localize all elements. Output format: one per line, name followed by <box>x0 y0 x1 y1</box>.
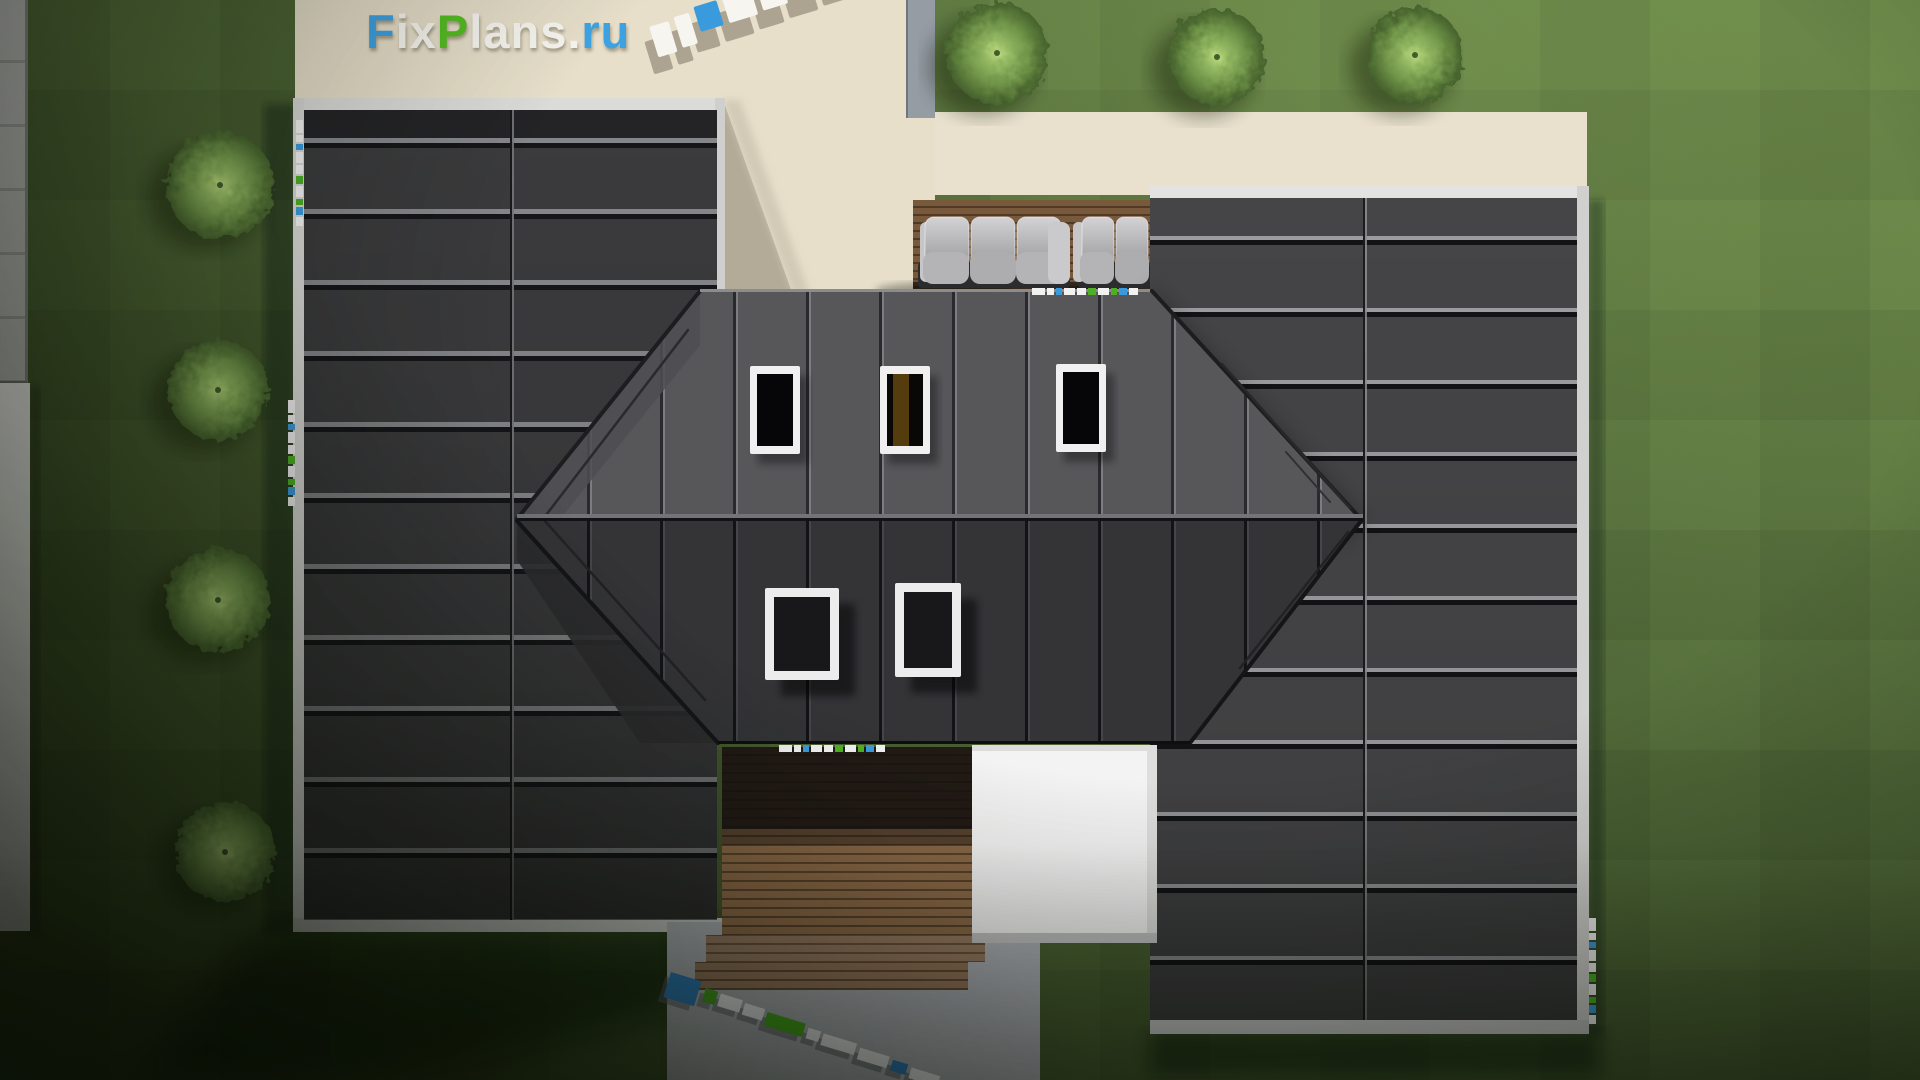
skylights-upper-row <box>750 364 1114 464</box>
logo-part: F <box>366 5 396 58</box>
logo-part: lans <box>469 5 567 58</box>
watermark-strip <box>1589 918 1596 1024</box>
logo-part: ix <box>396 5 437 58</box>
aerial-house-render: FixPlans.ru <box>0 0 1920 1080</box>
deck-shadow <box>722 747 975 829</box>
logo-part: P <box>437 5 469 58</box>
roof-ridge <box>517 514 1363 518</box>
logo-part: ru <box>581 5 630 58</box>
white-wall-strip <box>0 383 30 931</box>
sofa-three-seat <box>918 217 1070 288</box>
deck-step-2 <box>695 962 968 990</box>
logo-part: . <box>567 5 581 58</box>
watermark-strip <box>288 400 295 506</box>
patio-north-band <box>935 112 1587 195</box>
sofa-two-seat <box>1073 217 1150 288</box>
deck-step-1 <box>706 935 985 962</box>
bottom-eave <box>718 741 1190 744</box>
south-yard <box>667 745 1157 1080</box>
white-flat-roof <box>972 745 1157 937</box>
watermark-strip <box>779 745 885 752</box>
scene-canvas <box>0 0 1920 1080</box>
watermark-strip <box>296 120 303 226</box>
fixplans-logo: FixPlans.ru <box>366 4 630 60</box>
concrete-walkway-strip <box>0 0 27 383</box>
watermark-strip <box>1032 288 1138 295</box>
